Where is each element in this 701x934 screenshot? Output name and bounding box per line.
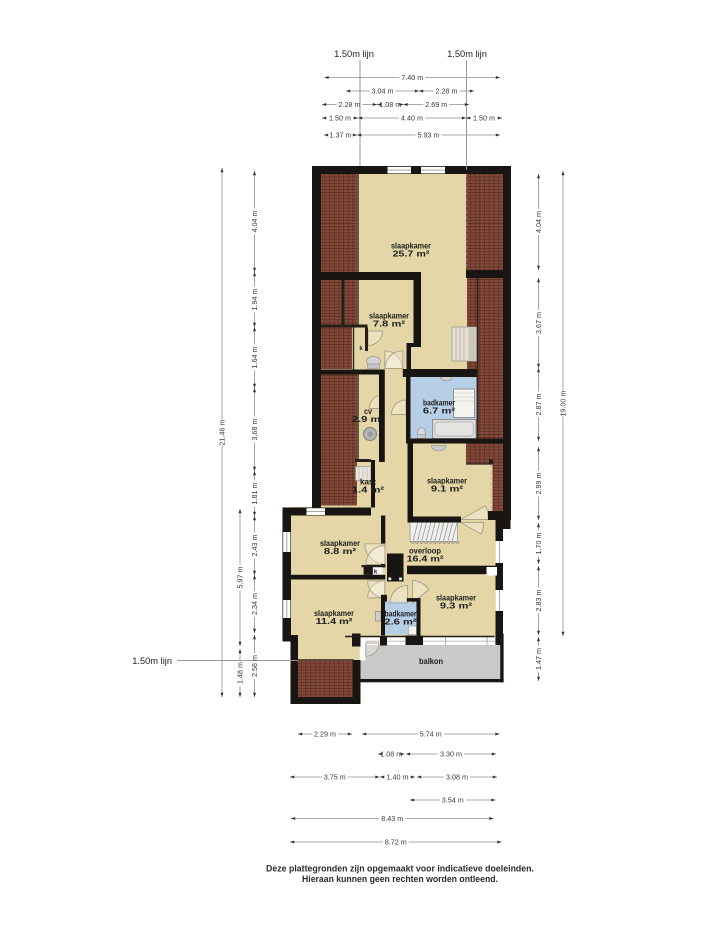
svg-text:19.00 m: 19.00 m [558, 391, 567, 417]
svg-text:5.97 m: 5.97 m [235, 567, 244, 589]
svg-text:3.75 m: 3.75 m [324, 772, 346, 781]
svg-text:2.58 m: 2.58 m [250, 655, 259, 677]
svg-text:2.87 m: 2.87 m [534, 394, 543, 416]
svg-text:1.08 m: 1.08 m [380, 749, 402, 758]
svg-text:7.40 m: 7.40 m [401, 73, 423, 82]
svg-text:8.72 m: 8.72 m [385, 837, 407, 846]
svg-text:2.43 m: 2.43 m [250, 535, 259, 557]
svg-text:9.3 m²: 9.3 m² [440, 600, 472, 610]
svg-text:5.74 m: 5.74 m [420, 729, 442, 738]
svg-text:1.94 m: 1.94 m [250, 289, 259, 311]
svg-text:4.04 m: 4.04 m [534, 211, 543, 233]
svg-text:4.04 m: 4.04 m [250, 211, 259, 233]
svg-text:1.50m lijn: 1.50m lijn [132, 656, 172, 666]
svg-text:9.1 m²: 9.1 m² [431, 483, 463, 493]
svg-text:3.67 m: 3.67 m [534, 312, 543, 334]
svg-text:4.40 m: 4.40 m [401, 113, 423, 122]
svg-text:2.34 m: 2.34 m [250, 593, 259, 615]
svg-text:3.08 m: 3.08 m [446, 772, 468, 781]
svg-text:16.4 m²: 16.4 m² [407, 553, 444, 563]
svg-text:8.43 m: 8.43 m [381, 814, 403, 823]
svg-text:7.8 m²: 7.8 m² [373, 318, 405, 328]
svg-text:25.7 m²: 25.7 m² [393, 248, 430, 258]
svg-text:1.81 m: 1.81 m [250, 483, 259, 505]
svg-text:2.69 m: 2.69 m [425, 100, 447, 109]
svg-text:1.50 m: 1.50 m [329, 113, 351, 122]
svg-text:11.4 m²: 11.4 m² [316, 616, 353, 626]
svg-text:2.28 m: 2.28 m [339, 100, 361, 109]
svg-text:3.54 m: 3.54 m [442, 795, 464, 804]
svg-text:2.99 m: 2.99 m [534, 473, 543, 495]
svg-text:1.50m lijn: 1.50m lijn [447, 49, 487, 59]
svg-text:1.48 m: 1.48 m [235, 662, 244, 684]
svg-text:2.28 m: 2.28 m [436, 86, 458, 95]
svg-text:1.4 m²: 1.4 m² [352, 484, 384, 494]
svg-text:1.08 m: 1.08 m [379, 100, 401, 109]
svg-text:balkon: balkon [419, 656, 443, 666]
svg-text:1.50m lijn: 1.50m lijn [334, 49, 374, 59]
svg-text:1.50 m: 1.50 m [473, 113, 495, 122]
svg-text:2.83 m: 2.83 m [534, 590, 543, 612]
svg-text:1.40 m: 1.40 m [387, 772, 409, 781]
svg-text:1.64 m: 1.64 m [250, 347, 259, 369]
svg-text:1.37 m: 1.37 m [330, 130, 352, 139]
svg-text:1.70 m: 1.70 m [534, 533, 543, 555]
svg-text:3.68 m: 3.68 m [250, 419, 259, 441]
svg-text:3.30 m: 3.30 m [440, 749, 462, 758]
svg-text:2.6 m²: 2.6 m² [384, 616, 416, 626]
svg-text:Hieraan kunnen geen rechten wo: Hieraan kunnen geen rechten worden ontle… [302, 874, 498, 885]
svg-text:2.29 m: 2.29 m [314, 729, 336, 738]
svg-text:1.47 m: 1.47 m [534, 648, 543, 670]
svg-text:8.8 m²: 8.8 m² [324, 546, 356, 556]
svg-text:Deze plattegronden zijn opgema: Deze plattegronden zijn opgemaakt voor i… [266, 864, 534, 875]
svg-text:5.93 m: 5.93 m [418, 130, 440, 139]
svg-text:6.7 m²: 6.7 m² [423, 405, 455, 415]
svg-text:3.04 m: 3.04 m [372, 86, 394, 95]
svg-text:21.46 m: 21.46 m [217, 420, 226, 446]
svg-text:2.9 m²: 2.9 m² [352, 414, 384, 424]
